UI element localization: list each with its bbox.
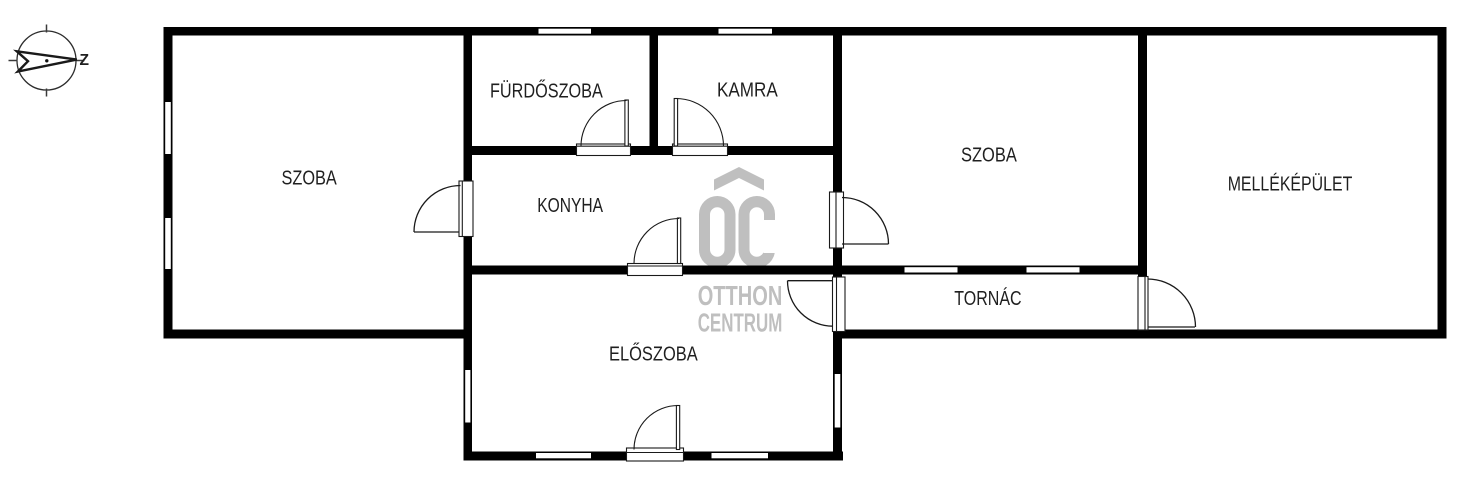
- svg-text:KONYHA: KONYHA: [537, 195, 603, 217]
- svg-text:SZOBA: SZOBA: [282, 167, 338, 189]
- svg-text:FÜRDŐSZOBA: FÜRDŐSZOBA: [490, 80, 603, 103]
- svg-text:ELŐSZOBA: ELŐSZOBA: [609, 342, 698, 365]
- svg-text:CENTRUM: CENTRUM: [698, 308, 783, 338]
- svg-text:OTTHON: OTTHON: [698, 280, 783, 311]
- svg-text:MELLÉKÉPÜLET: MELLÉKÉPÜLET: [1228, 173, 1353, 196]
- svg-text:SZOBA: SZOBA: [961, 145, 1017, 167]
- svg-text:Z: Z: [80, 52, 90, 69]
- svg-text:TORNÁC: TORNÁC: [954, 287, 1021, 310]
- svg-text:KAMRA: KAMRA: [717, 80, 778, 102]
